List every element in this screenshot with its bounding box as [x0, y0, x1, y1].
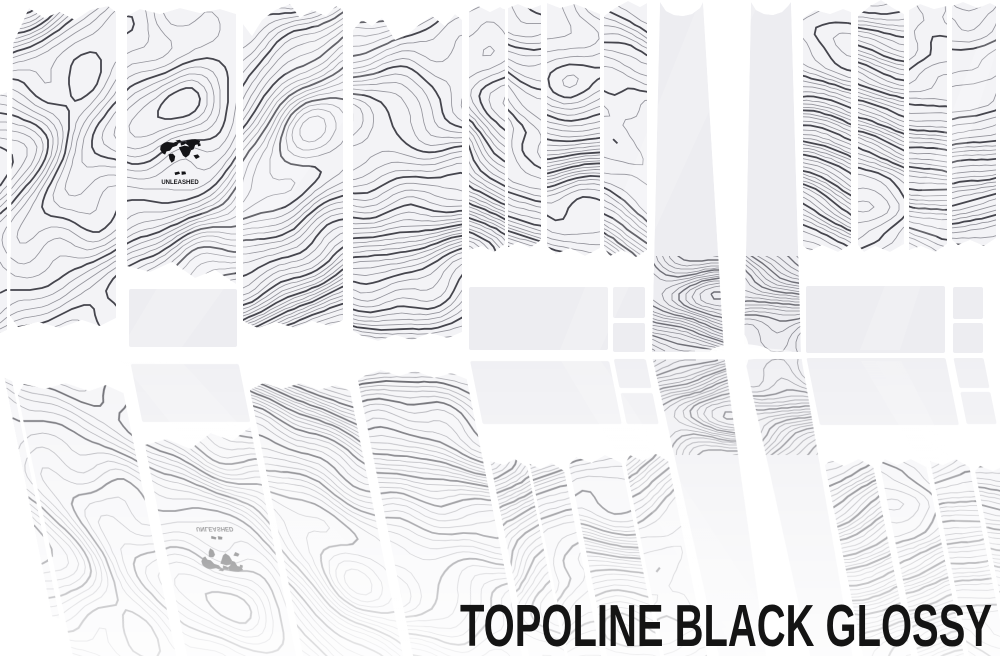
svg-text:UNLEASHED: UNLEASHED	[161, 180, 199, 186]
svg-text:TOPOLINE BLACK GLOSSY: TOPOLINE BLACK GLOSSY	[460, 593, 992, 656]
